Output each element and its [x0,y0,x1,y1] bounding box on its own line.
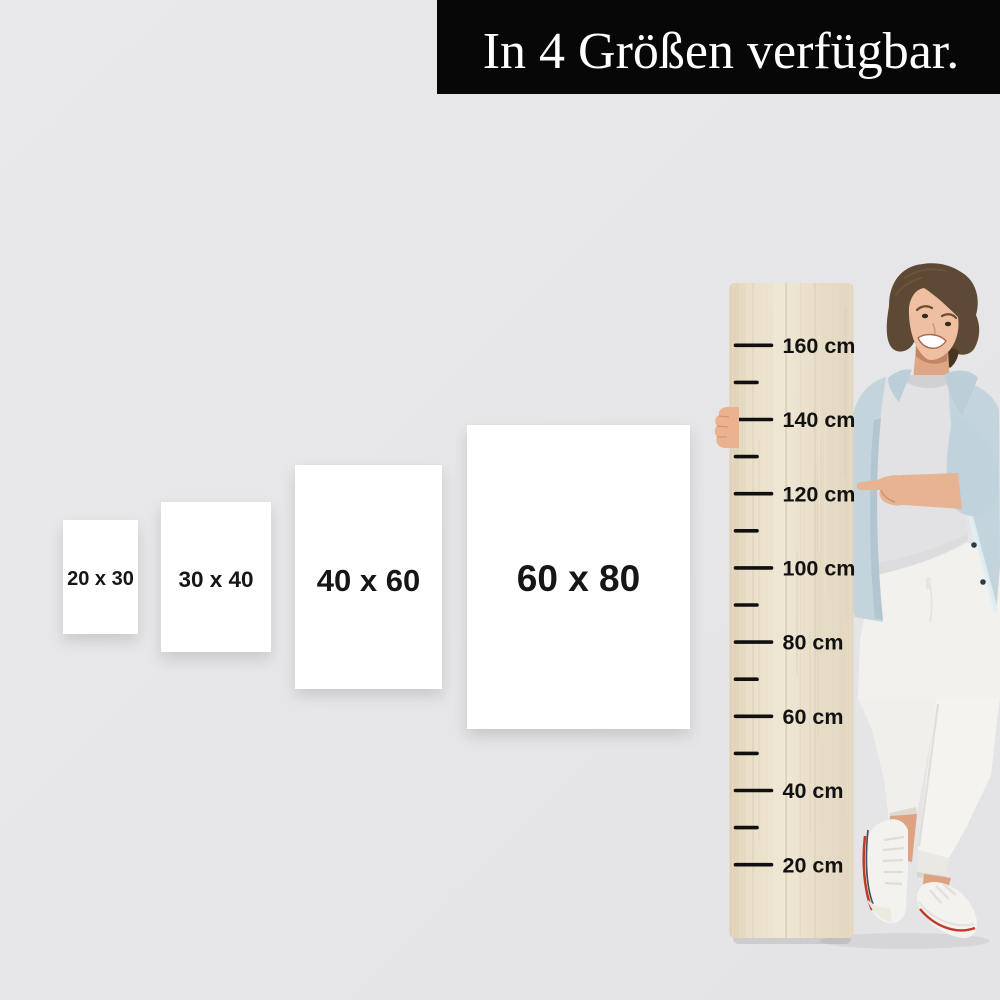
svg-text:40 cm: 40 cm [783,779,844,803]
svg-text:100 cm: 100 cm [783,557,856,581]
svg-text:60 cm: 60 cm [783,705,844,729]
svg-text:140 cm: 140 cm [783,408,856,432]
svg-text:80 cm: 80 cm [783,631,844,655]
svg-text:160 cm: 160 cm [783,334,856,358]
svg-text:20 cm: 20 cm [783,853,844,877]
svg-text:120 cm: 120 cm [783,482,856,506]
